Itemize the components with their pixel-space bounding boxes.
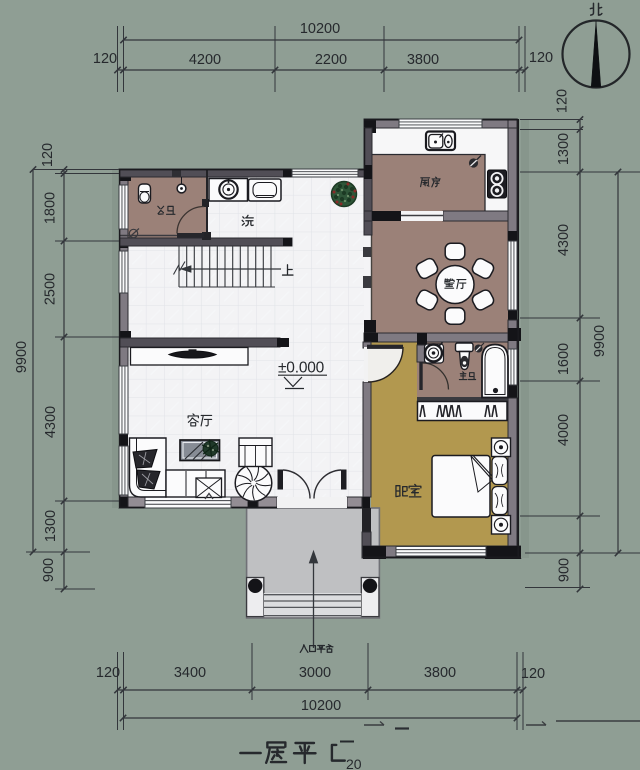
svg-text:2200: 2200 — [315, 52, 347, 68]
svg-text:3000: 3000 — [299, 665, 331, 681]
svg-text:2500: 2500 — [43, 273, 59, 305]
svg-text:4000: 4000 — [556, 414, 572, 446]
svg-text:9900: 9900 — [592, 325, 608, 357]
svg-text:3800: 3800 — [424, 665, 456, 681]
svg-text:120: 120 — [96, 665, 120, 681]
svg-text:4200: 4200 — [189, 52, 221, 68]
svg-text:120: 120 — [555, 89, 571, 113]
svg-text:3800: 3800 — [407, 52, 439, 68]
svg-text:3400: 3400 — [174, 665, 206, 681]
svg-text:900: 900 — [41, 558, 57, 582]
svg-text:120: 120 — [40, 143, 56, 167]
svg-text:10200: 10200 — [300, 21, 340, 37]
svg-text:±0.000: ±0.000 — [278, 360, 325, 377]
svg-text:20: 20 — [346, 756, 362, 770]
svg-text:1600: 1600 — [556, 343, 572, 375]
svg-text:9900: 9900 — [14, 341, 30, 373]
svg-text:4300: 4300 — [556, 224, 572, 256]
svg-text:4300: 4300 — [43, 406, 59, 438]
svg-text:1300: 1300 — [556, 133, 572, 165]
svg-text:10200: 10200 — [301, 698, 341, 714]
svg-text:900: 900 — [557, 558, 573, 582]
svg-text:120: 120 — [521, 666, 545, 682]
svg-text:120: 120 — [93, 51, 117, 67]
svg-text:1300: 1300 — [43, 510, 59, 542]
svg-text:1800: 1800 — [43, 192, 59, 224]
svg-text:120: 120 — [529, 50, 553, 66]
